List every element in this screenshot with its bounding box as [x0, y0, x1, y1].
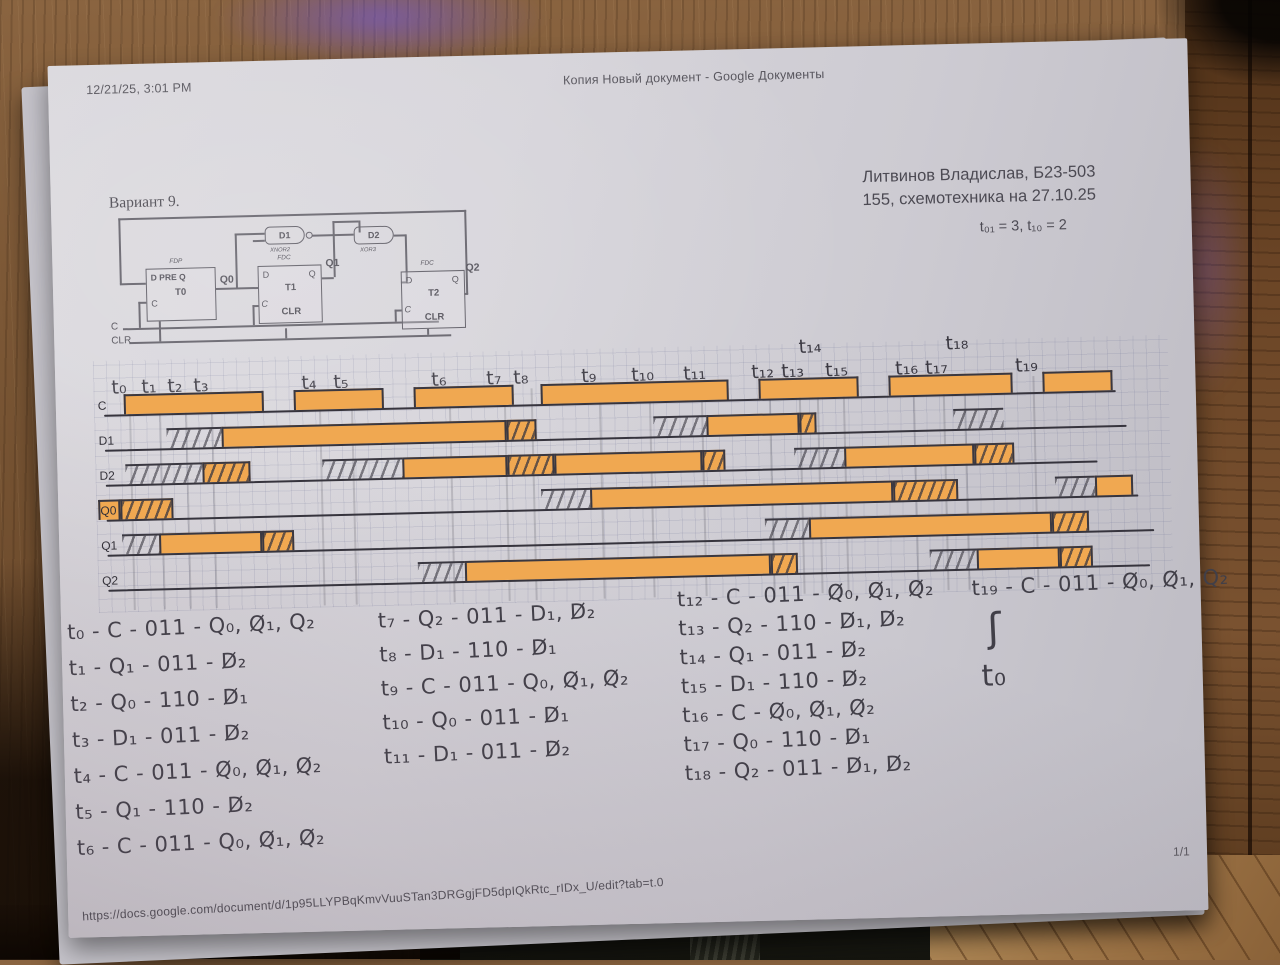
waveform-segment: [794, 447, 844, 468]
wire: [285, 328, 287, 338]
waveform-segment: [166, 427, 221, 448]
ff-pins-label: D PRE Q: [151, 272, 186, 283]
wire: [235, 233, 265, 235]
ff-clr-pin: CLR: [425, 311, 445, 322]
ff-type-label: FDC: [277, 254, 291, 261]
waveform-segment: [159, 531, 262, 554]
print-header-date: 12/21/25, 3:01 PM: [86, 81, 192, 98]
ff-name: T2: [428, 288, 439, 299]
waveform-segment: [765, 518, 809, 539]
ff-d-pin: D: [406, 275, 413, 285]
waveform-segment: [294, 388, 384, 410]
ff-clock-pin: C: [261, 299, 268, 309]
wire: [235, 233, 238, 287]
gate-type-label: XOR3: [360, 247, 376, 253]
net-q1: Q1: [325, 257, 339, 269]
document-url: https://docs.google.com/document/d/1p95L…: [82, 875, 664, 924]
variant-label: Вариант 9.: [109, 193, 180, 213]
page-number: 1/1: [1173, 844, 1190, 858]
wire: [252, 305, 254, 325]
signal-label: Q2: [102, 573, 118, 587]
printed-document-page: 12/21/25, 3:01 PM Копия Новый документ -…: [48, 38, 1209, 938]
signal-label: D2: [99, 469, 115, 483]
wire: [322, 277, 334, 279]
equations-column-4: t₁₉ - C - 011 - Q̸₀, Q̸₁, Q₂ʃt₀: [971, 563, 1234, 700]
wire: [138, 302, 146, 304]
waveform-segment: [1052, 511, 1089, 532]
time-label: t₁₈: [945, 331, 969, 354]
timing-parameters: t₀₁ = 3, t₁₀ = 2: [980, 217, 1067, 235]
waveform-segment: [418, 561, 465, 582]
ff-q-pin: Q: [309, 269, 316, 279]
wire: [253, 240, 265, 242]
time-label: t₁₉: [1014, 354, 1038, 377]
print-header-title: Копия Новый документ - Google Документы: [563, 67, 825, 87]
signal-label: C: [98, 399, 107, 413]
wire: [129, 334, 451, 343]
waveform-segment: [506, 419, 536, 440]
input-clr-label: CLR: [111, 335, 131, 346]
xor3-gate: D2: [354, 226, 394, 245]
waveform-segment: [974, 443, 1014, 464]
waveform-segment: [758, 376, 858, 398]
equations-column-1: t₀ - C - 011 - Q₀, Q̸₁, Q₂t₁ - Q₁ - 011 …: [66, 603, 325, 866]
waveform-segment: [541, 488, 590, 509]
wire: [159, 321, 161, 341]
waveform-segment: [1055, 476, 1095, 497]
input-c-label: C: [111, 321, 119, 332]
circuit-schematic: FDP D PRE Q T0 C Q0 FDC D Q T1 C CLR Q1 …: [106, 204, 481, 359]
xnor2-gate: D1: [265, 226, 305, 245]
waveform-segment: [262, 530, 294, 551]
signal-label: D1: [99, 434, 115, 448]
wire: [120, 283, 146, 285]
signal-label: Q1: [101, 538, 117, 552]
time-label: t₁₄: [798, 335, 822, 358]
flipflop-t2: D Q T2 C CLR: [401, 270, 466, 330]
waveform-segment: [706, 413, 799, 435]
wire: [138, 302, 140, 328]
waveform-segment: [1060, 546, 1093, 567]
waveform-segment: [953, 408, 1003, 429]
photo-of-document: { "colors":{"highlighter":"#f0a851","pen…: [0, 0, 1280, 959]
waveform-segment: [402, 455, 507, 478]
time-label: t₈: [513, 366, 529, 389]
net-q0: Q0: [220, 274, 234, 286]
net-q2: Q2: [465, 262, 479, 274]
equations-column-2: t₇ - Q₂ - 011 - D₁, D̸₂t₈ - D₁ - 110 - D…: [377, 593, 633, 774]
ff-q-pin: Q: [452, 274, 459, 284]
wire: [118, 218, 121, 284]
waveform-segment: [930, 549, 977, 570]
ff-clock-pin: C: [404, 304, 411, 314]
waveform-segment: [893, 479, 958, 501]
waveform-segment: [413, 385, 513, 407]
ff-type-label: FDC: [420, 260, 434, 267]
wire: [332, 221, 358, 223]
ff-type-label: FDP: [169, 258, 182, 265]
waveform-segment: [771, 553, 798, 574]
wire: [427, 329, 429, 335]
waveform-segment: [125, 462, 202, 484]
wire: [395, 309, 402, 311]
ff-d-pin: D: [263, 270, 270, 280]
waveform-segment: [122, 533, 159, 554]
plank-gap: [1248, 0, 1252, 900]
wire: [395, 310, 397, 322]
waveform-segment: [322, 458, 402, 480]
waveform-segment: [202, 461, 250, 482]
flipflop-t0: D PRE Q T0 C: [145, 267, 216, 322]
student-name-block: Литвинов Владислав, Б23-503 155, схемоте…: [745, 160, 1096, 215]
ff-name: T1: [285, 282, 296, 293]
waveform-segment: [653, 415, 706, 436]
waveform-segment: [702, 450, 725, 471]
signal-label: Q0: [100, 504, 116, 518]
waveform-segment: [799, 412, 816, 432]
waveform-segment: [120, 498, 173, 519]
equations-column-3: t₁₂ - C - 011 - Q̸₀, Q̸₁, Q̸₂t₁₃ - Q₂ - …: [676, 574, 942, 788]
inverter-bubble: [306, 232, 313, 239]
waveform-segment: [1042, 370, 1112, 392]
ff-name: T0: [175, 287, 186, 298]
wire: [118, 210, 466, 220]
waveform-segment: [1095, 475, 1133, 496]
ff-clock-pin: C: [151, 298, 158, 308]
flipflop-t1: D Q T1 C CLR: [257, 264, 322, 324]
waveform-segment: [977, 546, 1060, 568]
gate-type-label: XNOR2: [270, 247, 290, 253]
ff-clr-pin: CLR: [281, 306, 301, 317]
waveform-segment: [507, 454, 554, 475]
